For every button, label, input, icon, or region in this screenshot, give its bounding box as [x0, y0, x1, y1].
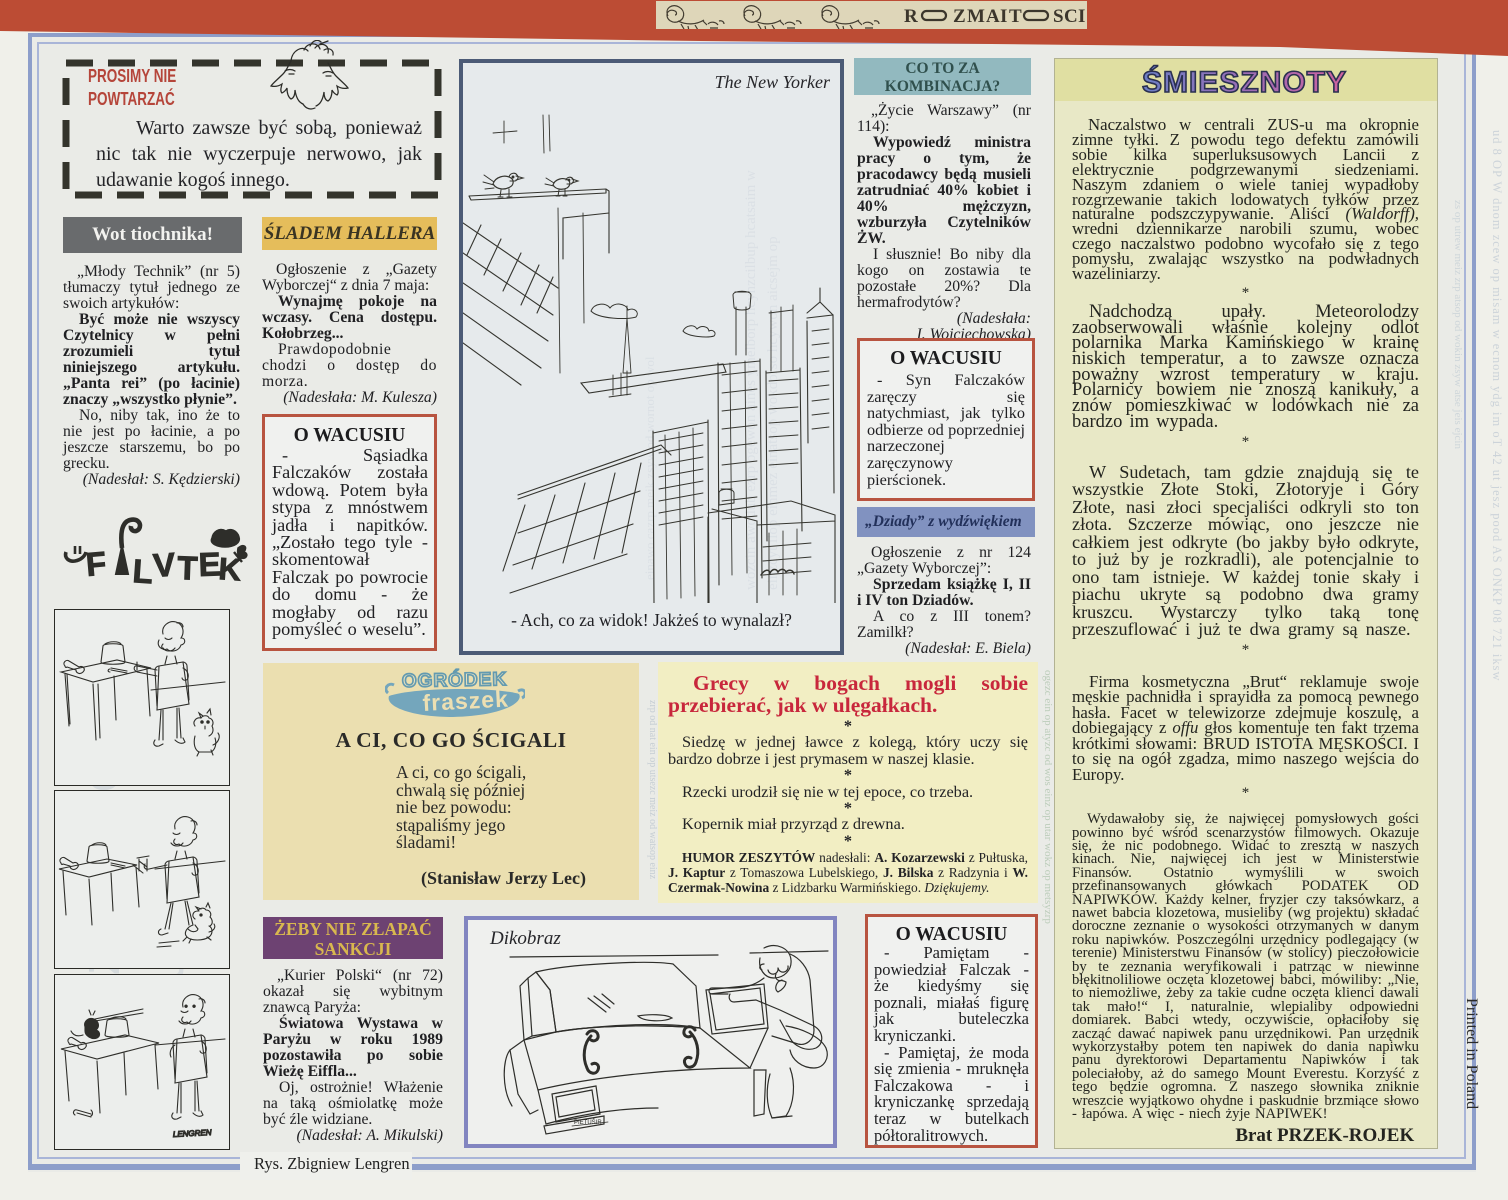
svg-text:F: F	[84, 544, 107, 583]
svg-text:C: C	[1064, 6, 1078, 27]
svg-text:Z: Z	[953, 6, 966, 27]
svg-text:M: M	[967, 6, 985, 27]
svg-text:R: R	[904, 6, 918, 27]
svg-text:V: V	[152, 546, 177, 584]
svg-text:LENGREN: LENGREN	[173, 1128, 212, 1139]
svg-text:I: I	[1000, 6, 1007, 27]
svg-text:T: T	[177, 549, 198, 587]
svg-text:ŚMIESZNOTY: ŚMIESZNOTY	[1142, 65, 1347, 99]
svg-text:PIETUŠIR: PIETUŠIR	[574, 1119, 602, 1126]
svg-text:T: T	[1009, 6, 1022, 27]
svg-text:S: S	[1053, 6, 1064, 27]
svg-text:I: I	[1078, 6, 1085, 27]
svg-text:fraszek: fraszek	[422, 686, 510, 716]
svg-text:L: L	[132, 552, 155, 590]
svg-text:A: A	[986, 6, 1000, 27]
